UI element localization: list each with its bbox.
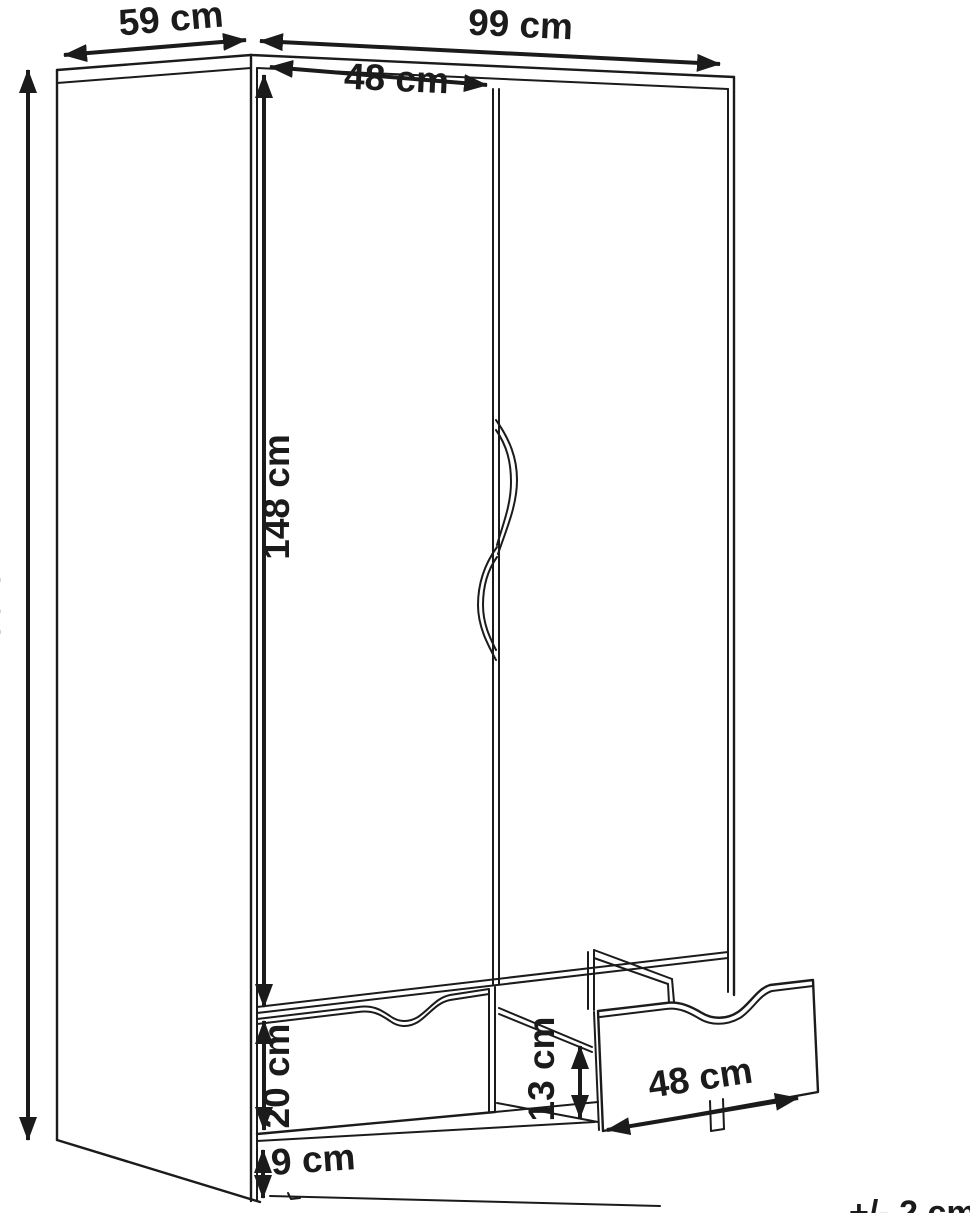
drawer-front-height-label: 20 cm [256,1024,297,1129]
door-height-label: 148 cm [256,434,297,560]
depth-label: 59 cm [117,0,225,44]
open-drawer [588,950,818,1131]
total-height-label: 180 cm [0,537,8,663]
top-front-outer-edge [251,55,734,77]
dimension-labels: 59 cm 99 cm 48 cm 180 cm 148 cm 20 cm 9 … [0,0,970,1213]
side-bottom-edge [57,1140,260,1202]
door-width-label: 48 cm [343,56,450,102]
wardrobe-dimension-diagram: 59 cm 99 cm 48 cm 180 cm 148 cm 20 cm 9 … [0,0,970,1213]
drawer-foot-a [710,1101,711,1131]
side-top-inner-edge [57,68,251,83]
base-height-label: 9 cm [270,1136,357,1183]
drawer-back-top-edge-b [594,958,668,984]
drawer-foot-b [723,1099,724,1129]
width-label: 99 cm [467,2,574,48]
dim-width-arrow [260,41,720,64]
cabinet-bottom-recess-edge [257,1122,595,1141]
dim-depth-arrow [64,40,246,55]
drawer-back-right-edge-a [672,979,674,1002]
drawer-foot-base [711,1129,724,1131]
tolerance-note-label: +/- 2 cm [849,1194,970,1213]
drawer-back-right-edge-b [668,984,669,1003]
plinth-bottom-edge [270,1196,660,1206]
drawer-inner-height-label: 13 cm [521,1017,562,1122]
left-door-handle-outer [478,547,497,660]
diagram-canvas: 59 cm 99 cm 48 cm 180 cm 148 cm 20 cm 9 … [0,0,970,1213]
drawer-back-top-edge-a [594,950,672,979]
doors [257,89,728,1013]
side-top-outer-edge [57,55,251,70]
